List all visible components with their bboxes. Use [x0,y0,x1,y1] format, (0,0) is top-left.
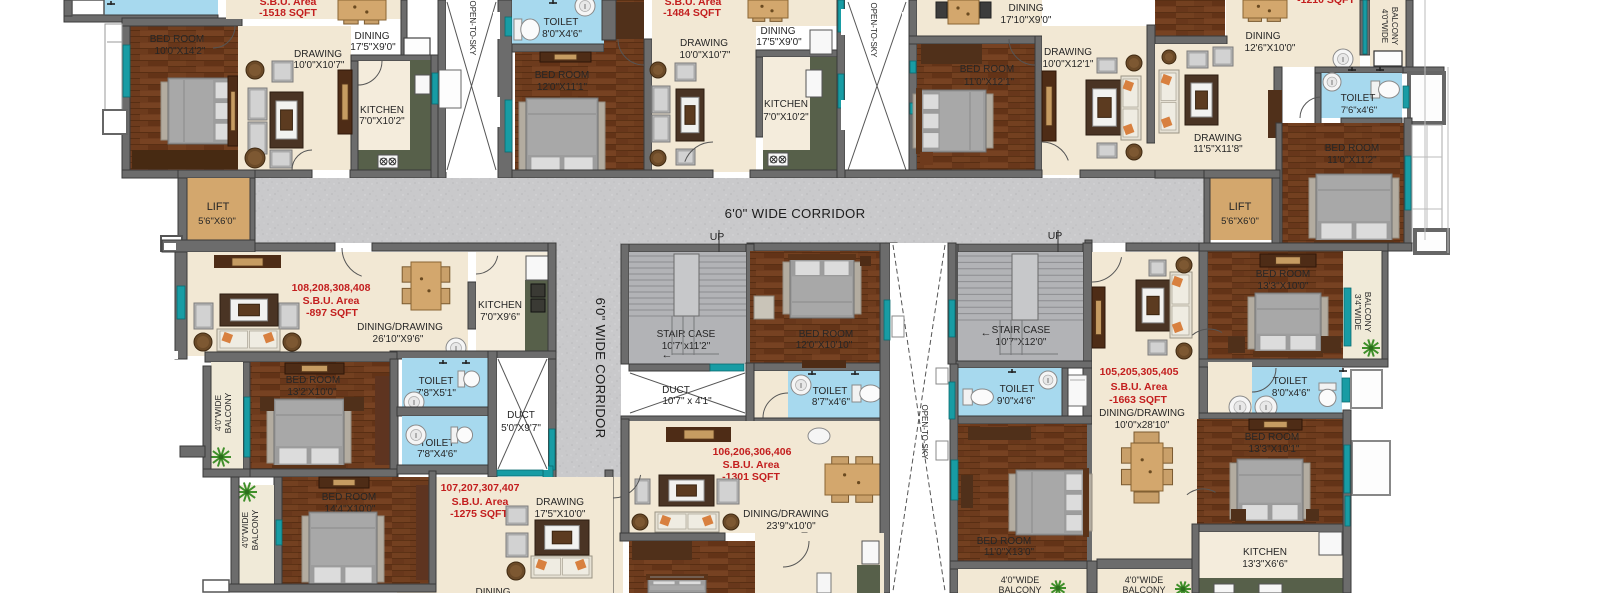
svg-text:DINING: DINING [1009,3,1044,14]
svg-text:13'3"X10'0": 13'3"X10'0" [1258,281,1309,292]
svg-text:4'0"WIDE: 4'0"WIDE [1125,575,1163,585]
svg-text:12'6"X10'0": 12'6"X10'0" [1245,43,1296,54]
svg-text:5'6"X6'0": 5'6"X6'0" [198,216,236,227]
svg-text:BED ROOM: BED ROOM [977,536,1031,547]
svg-text:10'0"X10'7": 10'0"X10'7" [680,50,731,61]
svg-text:TOILET: TOILET [544,17,579,28]
svg-text:-1518 SQFT: -1518 SQFT [259,7,317,19]
svg-text:DINING/DRAWING: DINING/DRAWING [1099,408,1185,419]
svg-text:13'3"X6'6": 13'3"X6'6" [1242,559,1288,570]
svg-text:7'8"X4'6": 7'8"X4'6" [417,449,457,460]
svg-text:6'0" WIDE CORRIDOR: 6'0" WIDE CORRIDOR [593,298,608,439]
svg-text:S.B.U. Area: S.B.U. Area [303,295,360,307]
svg-text:4'0"WIDE: 4'0"WIDE [1380,9,1389,43]
svg-text:S.B.U. Area: S.B.U. Area [1111,381,1168,393]
svg-text:12'0"X11'1": 12'0"X11'1" [537,82,588,93]
svg-text:10'0"x28'10": 10'0"x28'10" [1115,420,1170,431]
svg-text:DRAWING: DRAWING [294,49,342,60]
svg-text:DRAWING: DRAWING [680,38,728,49]
svg-text:KITCHEN: KITCHEN [1243,547,1287,558]
svg-text:7'0"X10'2": 7'0"X10'2" [763,112,809,123]
svg-text:11'0"X11'2": 11'0"X11'2" [1327,155,1377,166]
svg-text:BALCONY: BALCONY [1122,585,1165,593]
svg-text:DRAWING: DRAWING [1044,47,1092,58]
svg-text:BED ROOM: BED ROOM [286,375,340,386]
svg-text:DINING: DINING [355,31,390,42]
svg-text:17'5"X9'0": 17'5"X9'0" [350,42,396,53]
svg-text:17'10"X9'0": 17'10"X9'0" [1001,15,1052,26]
svg-text:-1210 SQFT: -1210 SQFT [1297,0,1355,6]
svg-text:BED ROOM: BED ROOM [1245,432,1299,443]
svg-text:BED ROOM: BED ROOM [1256,269,1310,280]
svg-text:S.B.U. Area: S.B.U. Area [452,496,509,508]
svg-text:11'5"X11'8": 11'5"X11'8" [1193,144,1243,155]
svg-text:13'2'X10'0": 13'2'X10'0" [287,387,337,398]
svg-text:8'0"X4'6": 8'0"X4'6" [542,29,582,40]
svg-text:3'4"WIDE: 3'4"WIDE [1353,294,1363,331]
svg-text:DUCT: DUCT [507,410,535,421]
svg-text:BALCONY: BALCONY [250,509,260,550]
svg-text:8'7"x4'6": 8'7"x4'6" [812,397,851,408]
svg-text:BED ROOM: BED ROOM [960,64,1014,75]
svg-text:DINING: DINING [1246,31,1281,42]
svg-text:TOILET: TOILET [419,376,454,387]
svg-text:8'0"x4'6": 8'0"x4'6" [1272,388,1311,399]
svg-text:LIFT: LIFT [207,201,230,213]
svg-text:←: ← [981,327,992,339]
svg-text:BALCONY: BALCONY [223,392,233,433]
svg-text:UP: UP [710,231,725,243]
svg-text:17'5"X10'0": 17'5"X10'0" [535,509,586,520]
svg-text:7'0"X9'6": 7'0"X9'6" [480,312,520,323]
svg-text:11'0"X12'1": 11'0"X12'1" [964,77,1015,88]
svg-text:4'0"WIDE: 4'0"WIDE [1001,575,1039,585]
svg-text:BALCONY: BALCONY [1390,7,1399,46]
svg-text:-1484 SQFT: -1484 SQFT [663,7,721,19]
svg-text:TOILET: TOILET [1000,384,1035,395]
svg-text:STAIR CASE: STAIR CASE [657,329,716,340]
svg-text:UP: UP [1048,230,1063,242]
svg-text:KITCHEN: KITCHEN [360,105,404,116]
svg-text:OPEN-TO-SKY: OPEN-TO-SKY [468,1,477,57]
svg-text:11'0"X13'0": 11'0"X13'0" [984,547,1035,558]
svg-text:10'7"X12'0": 10'7"X12'0" [996,337,1047,348]
svg-text:DRAWING: DRAWING [536,497,584,508]
svg-text:6'0" WIDE CORRIDOR: 6'0" WIDE CORRIDOR [725,206,866,221]
svg-text:BALCONY: BALCONY [998,585,1041,593]
svg-text:BED ROOM: BED ROOM [322,492,376,503]
svg-text:26'10"X9'6": 26'10"X9'6" [373,334,424,345]
svg-text:106,206,306,406: 106,206,306,406 [713,446,792,458]
svg-text:BED ROOM: BED ROOM [150,34,204,45]
svg-text:KITCHEN: KITCHEN [764,99,808,110]
svg-text:DINING: DINING [761,26,796,37]
svg-text:5'0"X9'7": 5'0"X9'7" [501,423,541,434]
svg-text:10'7" x 4'1": 10'7" x 4'1" [662,396,712,407]
svg-text:10'0"X14'2": 10'0"X14'2" [155,46,206,57]
svg-text:DINING: DINING [476,587,511,593]
svg-text:108,208,308,408: 108,208,308,408 [292,282,371,294]
svg-text:TOILET: TOILET [1273,376,1308,387]
svg-text:107,207,307,407: 107,207,307,407 [441,482,520,494]
svg-text:BALCONY: BALCONY [1363,292,1373,333]
svg-text:4'0"WIDE: 4'0"WIDE [240,512,250,549]
svg-text:OPEN-TO-SKY: OPEN-TO-SKY [920,405,929,461]
svg-text:12'0"X10'10": 12'0"X10'10" [796,340,853,351]
svg-text:KITCHEN: KITCHEN [478,300,522,311]
svg-text:5'6"X6'0": 5'6"X6'0" [1221,216,1259,227]
svg-text:DINING/DRAWING: DINING/DRAWING [743,509,829,520]
svg-text:105,205,305,405: 105,205,305,405 [1100,366,1179,378]
svg-text:OPEN-TO-SKY: OPEN-TO-SKY [869,3,878,59]
svg-text:23'9"x10'0": 23'9"x10'0" [766,521,816,532]
svg-text:7'6"x4'6": 7'6"x4'6" [1341,105,1377,116]
svg-text:DUCT: DUCT [662,385,690,396]
svg-text:7'0"X10'2": 7'0"X10'2" [359,116,405,127]
svg-text:4'0"WIDE: 4'0"WIDE [213,395,223,432]
svg-text:BED ROOM: BED ROOM [799,329,853,340]
svg-text:10'0"X12'1": 10'0"X12'1" [1043,59,1094,70]
svg-text:13'3"X10'1": 13'3"X10'1" [1249,444,1300,455]
svg-text:TOILET: TOILET [813,386,848,397]
svg-text:DINING/DRAWING: DINING/DRAWING [357,322,443,333]
svg-text:←: ← [662,349,673,361]
svg-text:BED ROOM: BED ROOM [1325,143,1379,154]
svg-text:9'0"x4'6": 9'0"x4'6" [997,396,1036,407]
svg-text:BED ROOM: BED ROOM [535,70,589,81]
svg-text:LIFT: LIFT [1229,201,1252,213]
svg-text:DRAWING: DRAWING [1194,133,1242,144]
svg-text:17'5"X9'0": 17'5"X9'0" [756,37,802,48]
svg-text:10'0"X10'7": 10'0"X10'7" [294,60,345,71]
svg-text:-1663 SQFT: -1663 SQFT [1109,394,1167,406]
svg-text:-897 SQFT: -897 SQFT [306,307,359,319]
svg-text:S.B.U. Area: S.B.U. Area [723,459,780,471]
svg-text:-1275 SQFT: -1275 SQFT [450,508,508,520]
svg-text:TOILET: TOILET [1341,93,1376,104]
